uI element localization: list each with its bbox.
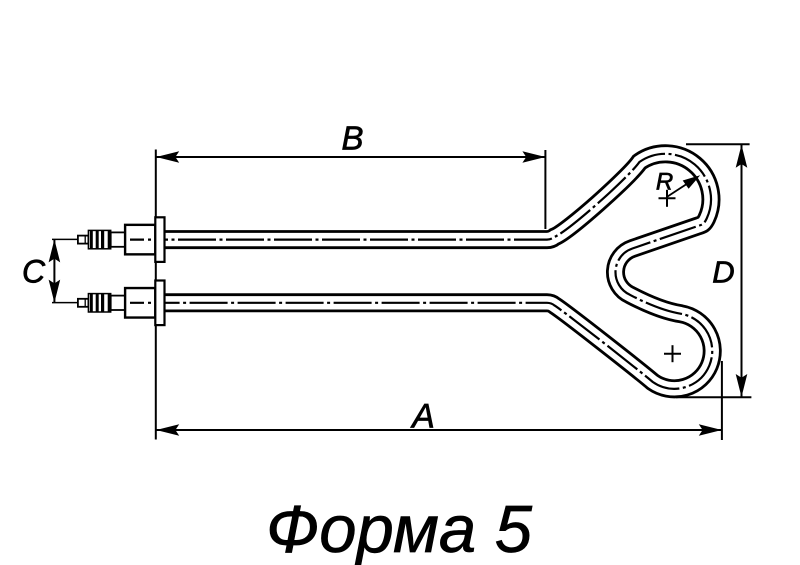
svg-text:B: B xyxy=(341,120,363,157)
svg-text:R: R xyxy=(656,169,673,196)
svg-text:C: C xyxy=(22,254,46,290)
svg-text:A: A xyxy=(410,398,435,436)
svg-text:Форма 5: Форма 5 xyxy=(266,492,533,565)
svg-text:D: D xyxy=(712,255,734,290)
